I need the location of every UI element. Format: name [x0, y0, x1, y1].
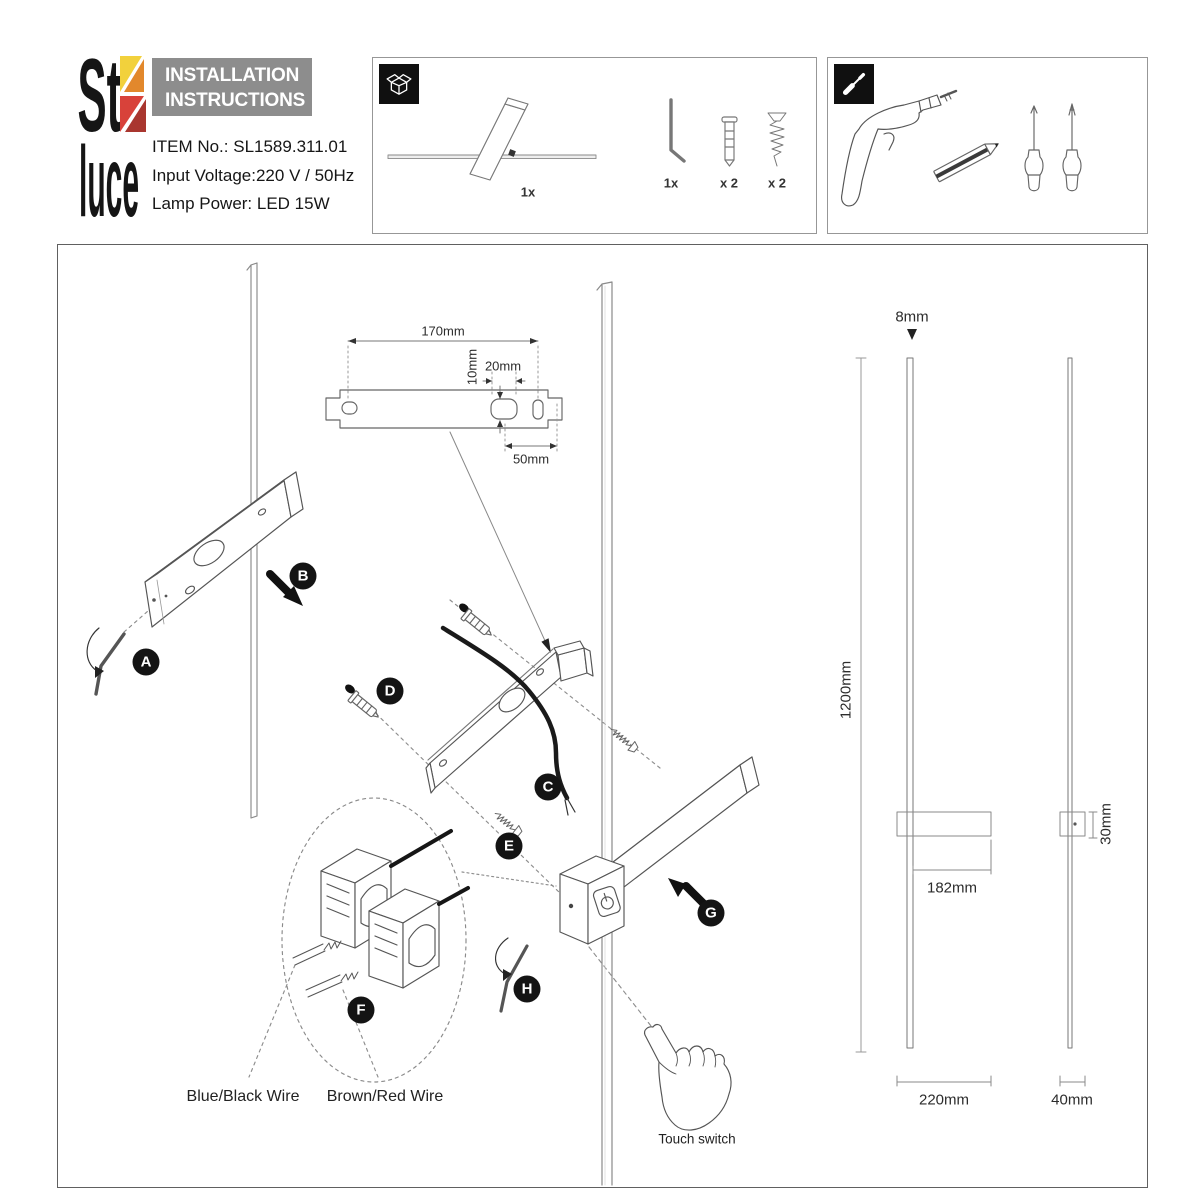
step-badge-f: F — [348, 997, 375, 1024]
step-badge-a: A — [133, 649, 160, 676]
tools-box — [827, 57, 1148, 234]
title-line-2: INSTRUCTIONS — [165, 88, 312, 113]
dim-box-height: 30mm — [1098, 803, 1115, 845]
dim-side-width: 40mm — [1051, 1092, 1093, 1109]
product-info: ITEM No.: SL1589.311.01 Input Voltage:22… — [152, 133, 354, 219]
page-title: INSTALLATION INSTRUCTIONS — [152, 58, 312, 116]
step-badge-h: H — [514, 976, 541, 1003]
dim-bracket-length: 170mm — [421, 324, 464, 339]
instruction-diagram-panel — [57, 244, 1148, 1188]
logo-text-bottom: luce — [79, 125, 139, 232]
dim-rod-diameter: 8mm — [895, 309, 928, 326]
lamp-count-label: 1x — [521, 185, 535, 200]
package-icon — [379, 64, 419, 104]
step-badge-e: E — [496, 833, 523, 860]
package-contents-box — [372, 57, 817, 234]
dim-lamp-height: 1200mm — [838, 661, 855, 719]
anchor-count-label: x 2 — [720, 176, 738, 191]
step-badge-g: G — [698, 900, 725, 927]
screw-count-label: x 2 — [768, 176, 786, 191]
input-voltage: Input Voltage:220 V / 50Hz — [152, 162, 354, 191]
dim-slot-to-hole: 50mm — [513, 452, 549, 467]
blue-black-wire-label: Blue/Black Wire — [187, 1088, 300, 1106]
item-number: ITEM No.: SL1589.311.01 — [152, 133, 354, 162]
lamp-power: Lamp Power: LED 15W — [152, 190, 354, 219]
step-badge-d: D — [377, 678, 404, 705]
dim-slot-width: 20mm — [485, 359, 521, 374]
installation-instructions-sheet: { "brand": { "logo_line1": "St", "logo_l… — [0, 0, 1200, 1200]
dim-arm-length: 182mm — [927, 880, 977, 897]
title-line-1: INSTALLATION — [165, 63, 312, 88]
brown-red-wire-label: Brown/Red Wire — [327, 1088, 443, 1106]
step-badge-c: C — [535, 774, 562, 801]
screwdriver-icon — [834, 64, 874, 104]
hex-key-count-label: 1x — [664, 176, 678, 191]
touch-switch-label: Touch switch — [658, 1132, 735, 1147]
dim-slot-height: 10mm — [465, 349, 480, 385]
step-badge-b: B — [290, 563, 317, 590]
dim-base-width: 220mm — [919, 1092, 969, 1109]
